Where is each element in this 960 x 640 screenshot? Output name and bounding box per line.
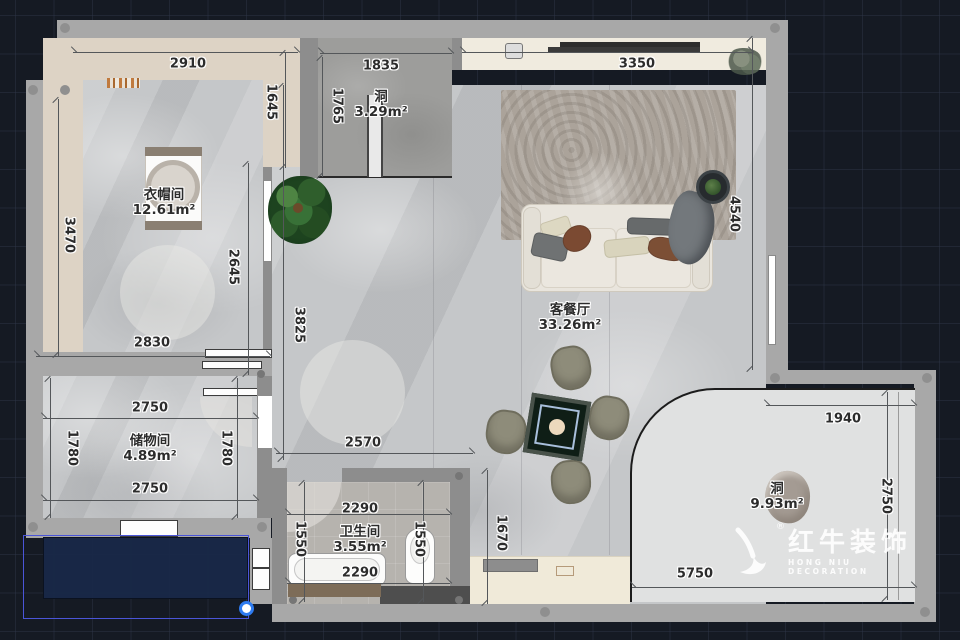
wall-pillar — [28, 85, 38, 95]
sliding-door-panel — [202, 361, 262, 369]
wall-pillar — [257, 522, 267, 532]
dim-line — [287, 583, 450, 584]
hole-room-right-wall — [452, 38, 462, 70]
outer-wall-top — [57, 20, 788, 38]
wall-pillar — [920, 607, 930, 617]
dimension-label: 2750 — [132, 482, 168, 497]
cabinet-color-swatch — [107, 78, 140, 88]
room-label-hole-top: 洞3.29m² — [354, 90, 407, 120]
dim-line — [752, 38, 753, 370]
dimension-label: 2750 — [132, 401, 168, 416]
dimension-label: 1780 — [219, 430, 234, 466]
side-table-plant — [705, 179, 721, 195]
dimension-label: 1550 — [293, 521, 308, 557]
outer-wall-mid — [766, 370, 936, 384]
bath-entry-door-panel — [252, 548, 270, 568]
dimension-label: 2645 — [226, 249, 241, 285]
dimension-label: 1780 — [65, 430, 80, 466]
dim-line — [73, 52, 298, 53]
dimension-label: 1670 — [494, 515, 509, 551]
brand-name: 红牛装饰 — [788, 530, 917, 556]
registered-mark: ® — [776, 522, 785, 532]
dimension-label: 2910 — [170, 57, 206, 72]
floorplan-canvas[interactable]: 2910183533501645176534702645382545402830… — [0, 0, 960, 640]
pillow-gray — [627, 217, 674, 236]
dim-line — [632, 587, 915, 588]
selection-bounds[interactable] — [23, 535, 249, 619]
dim-line — [237, 378, 238, 518]
dim-line — [36, 356, 270, 357]
entry-cabinet — [505, 43, 523, 59]
dim-line — [43, 418, 257, 419]
wall-pillar — [28, 522, 38, 532]
dimension-label: 1835 — [363, 59, 399, 74]
dim-line — [462, 52, 752, 53]
dimension-label: 3350 — [619, 57, 655, 72]
dimension-label: 1940 — [825, 412, 861, 427]
brand-watermark: ® 红牛装饰 HONG NIU DECORATION — [732, 524, 917, 582]
room-label-hole-bottom: 洞9.93m² — [750, 482, 803, 512]
dimension-label: 2750 — [879, 478, 894, 514]
dim-line — [248, 163, 249, 375]
wall-pillar — [455, 596, 463, 604]
tv-on-cabinet — [483, 559, 538, 572]
dim-line — [766, 405, 915, 406]
bath-vanity — [288, 584, 381, 597]
wall-pillar — [540, 607, 550, 617]
wall-pillar — [922, 373, 932, 383]
bathroom-left-wall — [272, 468, 287, 604]
dim-line — [487, 470, 488, 604]
dimension-label: 3825 — [292, 307, 307, 343]
dimension-label: 4540 — [727, 196, 742, 232]
right-wall-window — [768, 255, 776, 345]
dimension-label: 2290 — [342, 566, 378, 581]
hongniu-bull-logo-icon — [732, 526, 778, 578]
cabinet-item — [556, 566, 574, 576]
dim-line — [43, 500, 257, 501]
storage-door-opening — [258, 396, 272, 448]
dimension-label: 1645 — [264, 84, 279, 120]
dim-line — [58, 99, 59, 356]
outer-wall-left — [26, 80, 43, 538]
plant-pot-center — [293, 203, 303, 213]
hole-room-left-wall — [300, 38, 318, 178]
wall-pillar — [770, 23, 780, 33]
room-label-bathroom: 卫生间3.55m² — [333, 525, 386, 555]
wall-pillar — [455, 472, 463, 480]
room-label-storage: 储物间4.89m² — [123, 434, 176, 464]
bathroom-right-wall — [450, 468, 470, 604]
dim-line — [320, 53, 452, 54]
dimension-label: 2830 — [134, 336, 170, 351]
room-label-living-dining: 客餐厅33.26m² — [539, 303, 602, 333]
floor-decor-circle — [300, 340, 405, 445]
wall-pillar — [289, 596, 297, 604]
dimension-label: 3470 — [62, 217, 77, 253]
floor-decor-circle — [120, 245, 215, 340]
wall-pillar — [60, 23, 70, 33]
selection-handle[interactable] — [239, 601, 254, 616]
dimension-label: 2290 — [342, 502, 378, 517]
outer-wall-bottom — [272, 604, 936, 622]
dimension-label: 2570 — [345, 436, 381, 451]
dim-line — [285, 52, 286, 168]
dim-line — [283, 85, 284, 460]
dining-table — [523, 393, 592, 462]
dim-line — [322, 57, 323, 177]
dimension-label: 5750 — [677, 567, 713, 582]
wall-pillar — [770, 373, 780, 383]
brand-subtitle: HONG NIU DECORATION — [788, 558, 917, 576]
dimension-label: 1765 — [330, 88, 345, 124]
dimension-label: 1550 — [412, 521, 427, 557]
sliding-door-panel — [203, 388, 263, 396]
dim-line — [276, 453, 473, 454]
room-label-cloakroom: 衣帽间12.61m² — [133, 188, 196, 218]
wall-pillar — [257, 370, 265, 378]
wall-pillar — [60, 85, 70, 95]
outer-wall-right-lower — [914, 370, 936, 622]
closet-top-panel — [145, 147, 202, 156]
closet-bottom-panel — [145, 221, 202, 230]
bath-entry-door-panel — [252, 568, 270, 590]
dim-line — [50, 378, 51, 518]
